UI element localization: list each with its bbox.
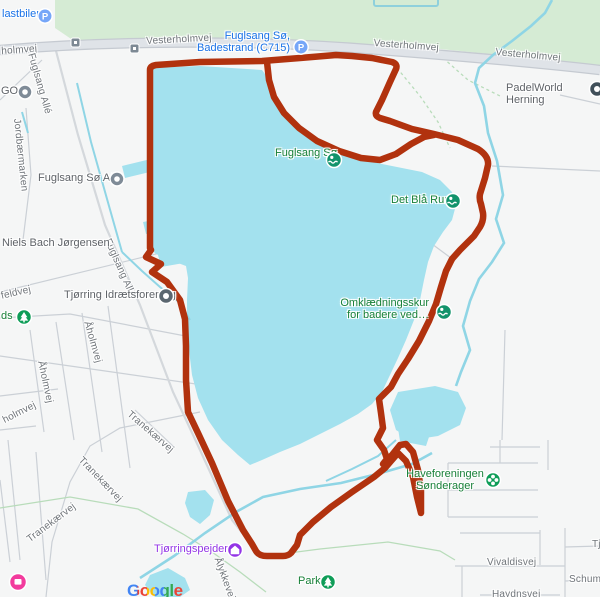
poi-label-lastbiler[interactable]: lastbiler	[2, 8, 40, 20]
poi-label-niels-bach[interactable]: Niels Bach Jørgensen	[2, 237, 110, 249]
street-label-vivaldisvej: Vivaldisvej	[487, 557, 536, 568]
map-canvas[interactable]: holmvej Vesterholmvej Vesterholmvej Vest…	[0, 0, 600, 597]
poi-label-badestrand[interactable]: Fuglsang Sø, Badestrand (C715)	[180, 30, 290, 54]
google-logo[interactable]: Google	[127, 581, 183, 597]
poi-label-haveforeningen[interactable]: Haveforeningen Sønderager	[400, 468, 490, 492]
sports-icon[interactable]	[157, 287, 175, 305]
swimming-icon[interactable]	[435, 303, 453, 321]
poi-label-park[interactable]: Park	[298, 575, 321, 587]
street-label-tj: Tj	[592, 539, 600, 550]
business-icon[interactable]	[108, 170, 126, 188]
bus-stop-icon[interactable]	[130, 44, 139, 53]
swimming-icon[interactable]	[444, 192, 462, 210]
bus-stop-icon[interactable]	[71, 38, 80, 47]
parking-glyph: P	[298, 43, 305, 54]
tree-icon[interactable]	[319, 573, 337, 591]
poi-label-omklaedningsskur[interactable]: Omklædningsskur for badere ved…	[329, 297, 429, 321]
poi-label-plads[interactable]: ds	[1, 310, 13, 322]
poi-label-padelworld[interactable]: PadelWorld Herning	[506, 82, 600, 106]
street-label-schumannsvej: Schuman	[569, 574, 600, 585]
shop-icon[interactable]	[8, 572, 28, 592]
business-icon[interactable]	[16, 83, 34, 101]
parking-icon[interactable]: P	[36, 7, 54, 25]
parking-icon[interactable]: P	[292, 38, 310, 56]
house-icon[interactable]	[226, 541, 244, 559]
parking-glyph: P	[42, 12, 49, 23]
tree-icon[interactable]	[15, 308, 33, 326]
sports-icon[interactable]	[588, 80, 600, 98]
flower-icon[interactable]	[484, 471, 502, 489]
swimming-icon[interactable]	[325, 151, 343, 169]
street-label-haydnsvej: Haydnsvej	[492, 589, 541, 597]
